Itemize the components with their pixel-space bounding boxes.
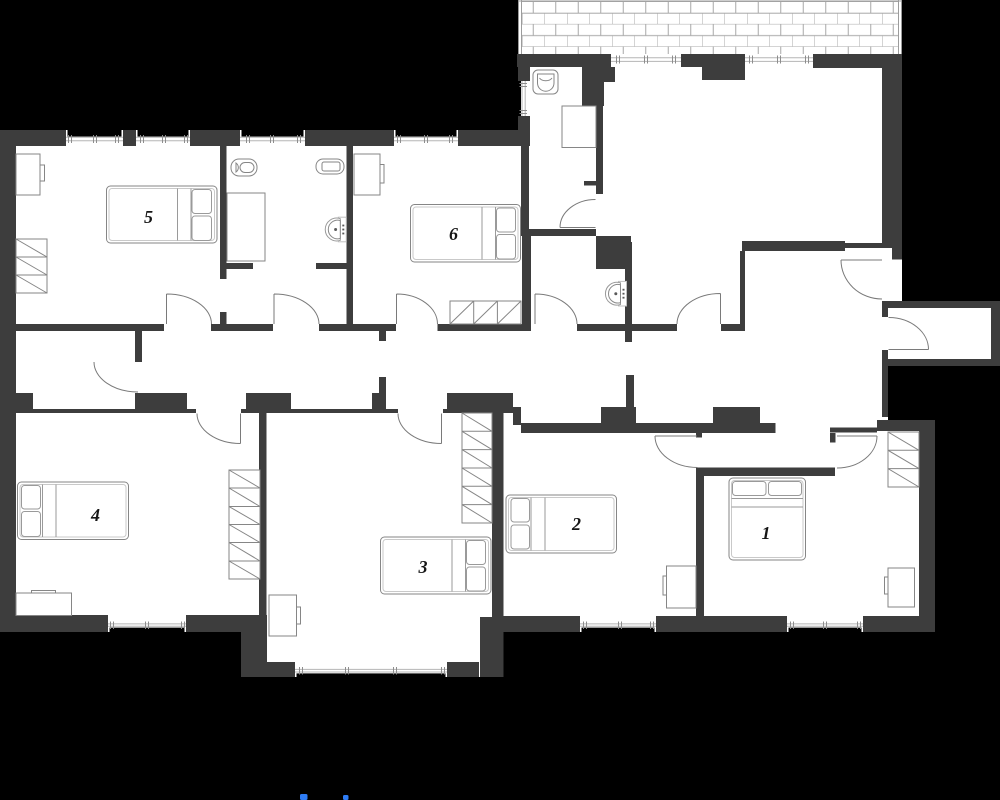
svg-text:1: 1 <box>762 523 771 543</box>
svg-text:6: 6 <box>449 224 458 244</box>
svg-text:2: 2 <box>571 514 581 534</box>
svg-text:3: 3 <box>418 557 428 577</box>
svg-text:5: 5 <box>144 207 153 227</box>
svg-text:4: 4 <box>90 505 100 525</box>
